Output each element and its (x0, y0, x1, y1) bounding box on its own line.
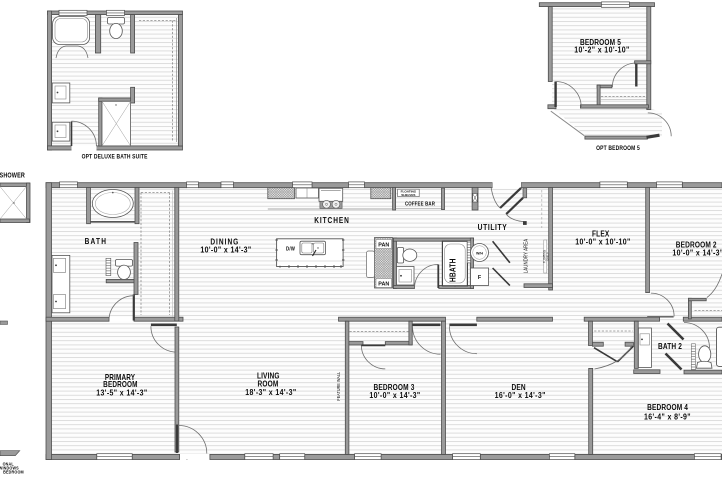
svg-text:10'-0" x 14'-3": 10'-0" x 14'-3" (200, 245, 251, 255)
svg-text:SHELVES: SHELVES (401, 193, 415, 197)
svg-text:COFFEE BAR: COFFEE BAR (405, 201, 435, 208)
svg-text:13'-5" x 14'-3": 13'-5" x 14'-3" (96, 388, 147, 398)
svg-text:16'-0" x 14'-3": 16'-0" x 14'-3" (495, 390, 546, 400)
svg-text:10'-0" x 14'-3": 10'-0" x 14'-3" (369, 390, 420, 400)
svg-text:SHELF: SHELF (546, 252, 551, 261)
svg-text:SHOWER: SHOWER (0, 172, 25, 180)
svg-text:10'-0" x 10'-10": 10'-0" x 10'-10" (575, 237, 630, 247)
svg-text:BATH: BATH (85, 236, 108, 246)
svg-text:16'-4" x 8'-9": 16'-4" x 8'-9" (644, 412, 691, 422)
svg-text:OPT BEDROOM 5: OPT BEDROOM 5 (596, 146, 640, 153)
svg-text:x: x (13, 201, 15, 205)
svg-text:10'-0" x 14'-3": 10'-0" x 14'-3" (672, 248, 722, 258)
svg-text:BATH 2: BATH 2 (658, 341, 682, 351)
svg-text:x: x (115, 103, 117, 107)
svg-text:18'-3" x 14'-3": 18'-3" x 14'-3" (245, 387, 296, 397)
svg-text:HBATH: HBATH (448, 258, 458, 282)
svg-text:W/H: W/H (476, 251, 483, 255)
svg-text:PAN: PAN (378, 281, 389, 287)
svg-text:PAN: PAN (378, 242, 389, 248)
svg-text:LAUNDRY AREA: LAUNDRY AREA (523, 238, 530, 273)
svg-text:FEATURE WALL: FEATURE WALL (336, 371, 342, 400)
svg-text:UTILITY: UTILITY (478, 222, 508, 232)
svg-text:OPT DELUXE BATH SUITE: OPT DELUXE BATH SUITE (82, 154, 148, 161)
svg-text:D/W: D/W (286, 246, 295, 253)
svg-text:10'-2" x 10'-10": 10'-2" x 10'-10" (574, 45, 629, 55)
svg-text:BEDROOM: BEDROOM (3, 469, 24, 475)
svg-text:BEDROOM 4: BEDROOM 4 (647, 402, 689, 412)
svg-text:KITCHEN: KITCHEN (314, 215, 350, 225)
